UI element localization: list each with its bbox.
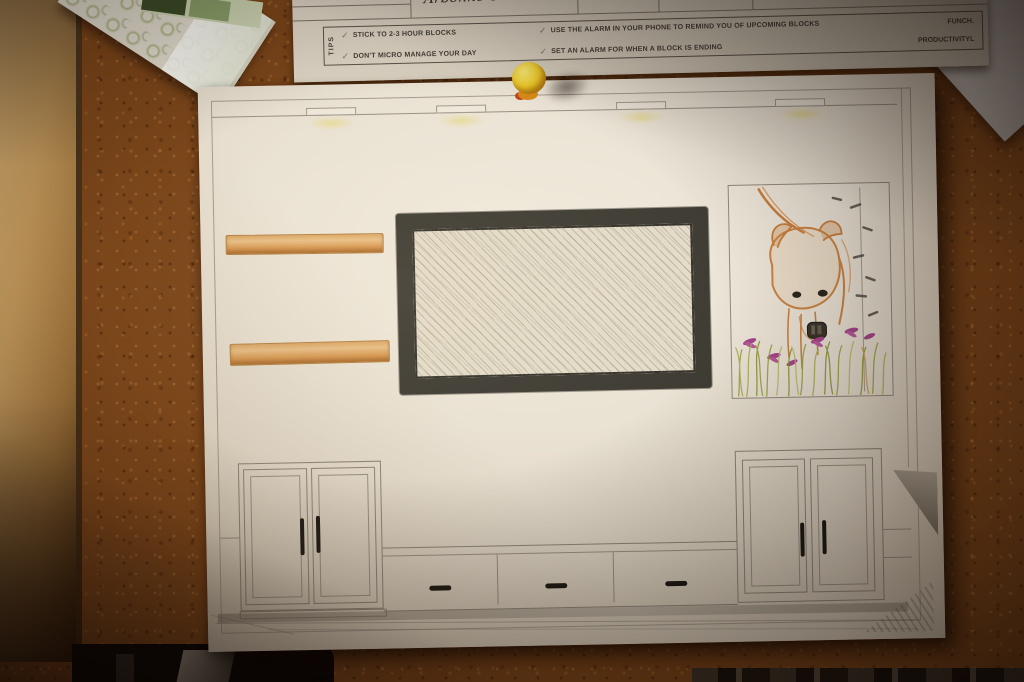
door-panel bbox=[749, 466, 800, 587]
drawer bbox=[614, 550, 738, 602]
desk-edge-strip bbox=[692, 668, 1024, 682]
floating-shelf bbox=[230, 340, 390, 366]
door-handle bbox=[822, 520, 826, 554]
bear-nose bbox=[807, 322, 826, 338]
tip-item: ✓ DON'T MICRO MANAGE YOUR DAY bbox=[341, 49, 529, 61]
right-tall-cabinet bbox=[735, 448, 885, 603]
bear-artwork-svg bbox=[729, 183, 893, 398]
ceiling-light-notch bbox=[775, 98, 825, 107]
board-wood-frame bbox=[0, 0, 82, 662]
tips-column-2: ✓ USE THE ALARM IN YOUR PHONE TO REMIND … bbox=[539, 20, 858, 56]
door-panel bbox=[250, 475, 302, 598]
drawer-handle bbox=[545, 583, 567, 588]
drawer-bench bbox=[383, 541, 738, 612]
cabinet-door bbox=[742, 459, 808, 594]
media-wall-sketch-paper bbox=[198, 73, 946, 652]
floating-shelf bbox=[226, 233, 384, 255]
check-icon: ✓ bbox=[341, 32, 349, 39]
ceiling-light-glow bbox=[778, 108, 824, 120]
drawer bbox=[383, 554, 499, 606]
tip-text: SET AN ALARM FOR WHEN A BLOCK IS ENDING bbox=[551, 44, 722, 55]
artwork-edge-line bbox=[860, 187, 865, 391]
corkboard-photo: Arbonne Clients TIPS ✓ STICK TO 2-3 HOUR… bbox=[0, 0, 1024, 682]
drawer-handle bbox=[429, 585, 451, 590]
cabinet-door bbox=[311, 467, 378, 604]
cabinet-door bbox=[810, 457, 876, 592]
table-line bbox=[410, 0, 412, 18]
tip-item: ✓ SET AN ALARM FOR WHEN A BLOCK IS ENDIN… bbox=[539, 41, 857, 56]
ceiling-light-notch bbox=[616, 101, 666, 110]
brand-line-1: FUNCH. bbox=[947, 18, 974, 26]
brand-text: FUNCH. PRODUCTIVITYL bbox=[867, 17, 979, 48]
tv-screen-hatching bbox=[412, 223, 695, 378]
door-handle bbox=[300, 518, 304, 555]
tip-item: ✓ STICK TO 2-3 HOUR BLOCKS bbox=[341, 28, 529, 40]
time-blocking-tips-sheet: Arbonne Clients TIPS ✓ STICK TO 2-3 HOUR… bbox=[292, 0, 989, 82]
pushpin-head bbox=[512, 62, 546, 94]
desk-object-sliver bbox=[116, 654, 134, 682]
tips-label: TIPS bbox=[324, 27, 340, 64]
tip-text: USE THE ALARM IN YOUR PHONE TO REMIND YO… bbox=[551, 21, 820, 35]
check-icon: ✓ bbox=[539, 27, 547, 34]
bear-figure bbox=[759, 186, 852, 370]
tips-column-1: ✓ STICK TO 2-3 HOUR BLOCKS ✓ DON'T MICRO… bbox=[341, 28, 530, 61]
door-handle bbox=[800, 523, 804, 557]
door-panel bbox=[318, 474, 370, 597]
ceiling-light-glow bbox=[308, 117, 354, 129]
tip-text: STICK TO 2-3 HOUR BLOCKS bbox=[353, 30, 457, 40]
tip-item: ✓ USE THE ALARM IN YOUR PHONE TO REMIND … bbox=[539, 20, 857, 35]
ceiling-light-glow bbox=[438, 115, 484, 127]
table-line bbox=[577, 0, 579, 14]
table-line bbox=[292, 4, 410, 8]
desk-object-grey-slab bbox=[177, 650, 236, 682]
ceiling-light-notch bbox=[436, 105, 486, 114]
floor-line bbox=[268, 628, 918, 630]
left-tall-cabinet bbox=[238, 461, 384, 612]
tips-columns: ✓ STICK TO 2-3 HOUR BLOCKS ✓ DON'T MICRO… bbox=[339, 12, 983, 65]
yellow-pushpin bbox=[512, 62, 548, 104]
tv-sketch bbox=[396, 207, 712, 395]
check-icon: ✓ bbox=[341, 53, 349, 60]
check-icon: ✓ bbox=[539, 48, 547, 55]
tips-box: TIPS ✓ STICK TO 2-3 HOUR BLOCKS ✓ DON'T … bbox=[323, 11, 984, 66]
drawer-handle bbox=[665, 581, 687, 586]
bear-artwork-frame bbox=[728, 182, 894, 399]
ceiling-light-notch bbox=[306, 107, 356, 116]
drawer bbox=[498, 552, 615, 604]
handwritten-note: Arbonne Clients bbox=[423, 0, 645, 7]
brand-line-2: PRODUCTIVITYL bbox=[918, 36, 975, 44]
ceiling-light-glow bbox=[618, 111, 664, 123]
tip-text: DON'T MICRO MANAGE YOUR DAY bbox=[353, 50, 476, 60]
door-handle bbox=[316, 516, 320, 553]
paint-chip-mid-green bbox=[189, 0, 231, 22]
table-line bbox=[752, 0, 754, 9]
table-line bbox=[658, 0, 660, 12]
